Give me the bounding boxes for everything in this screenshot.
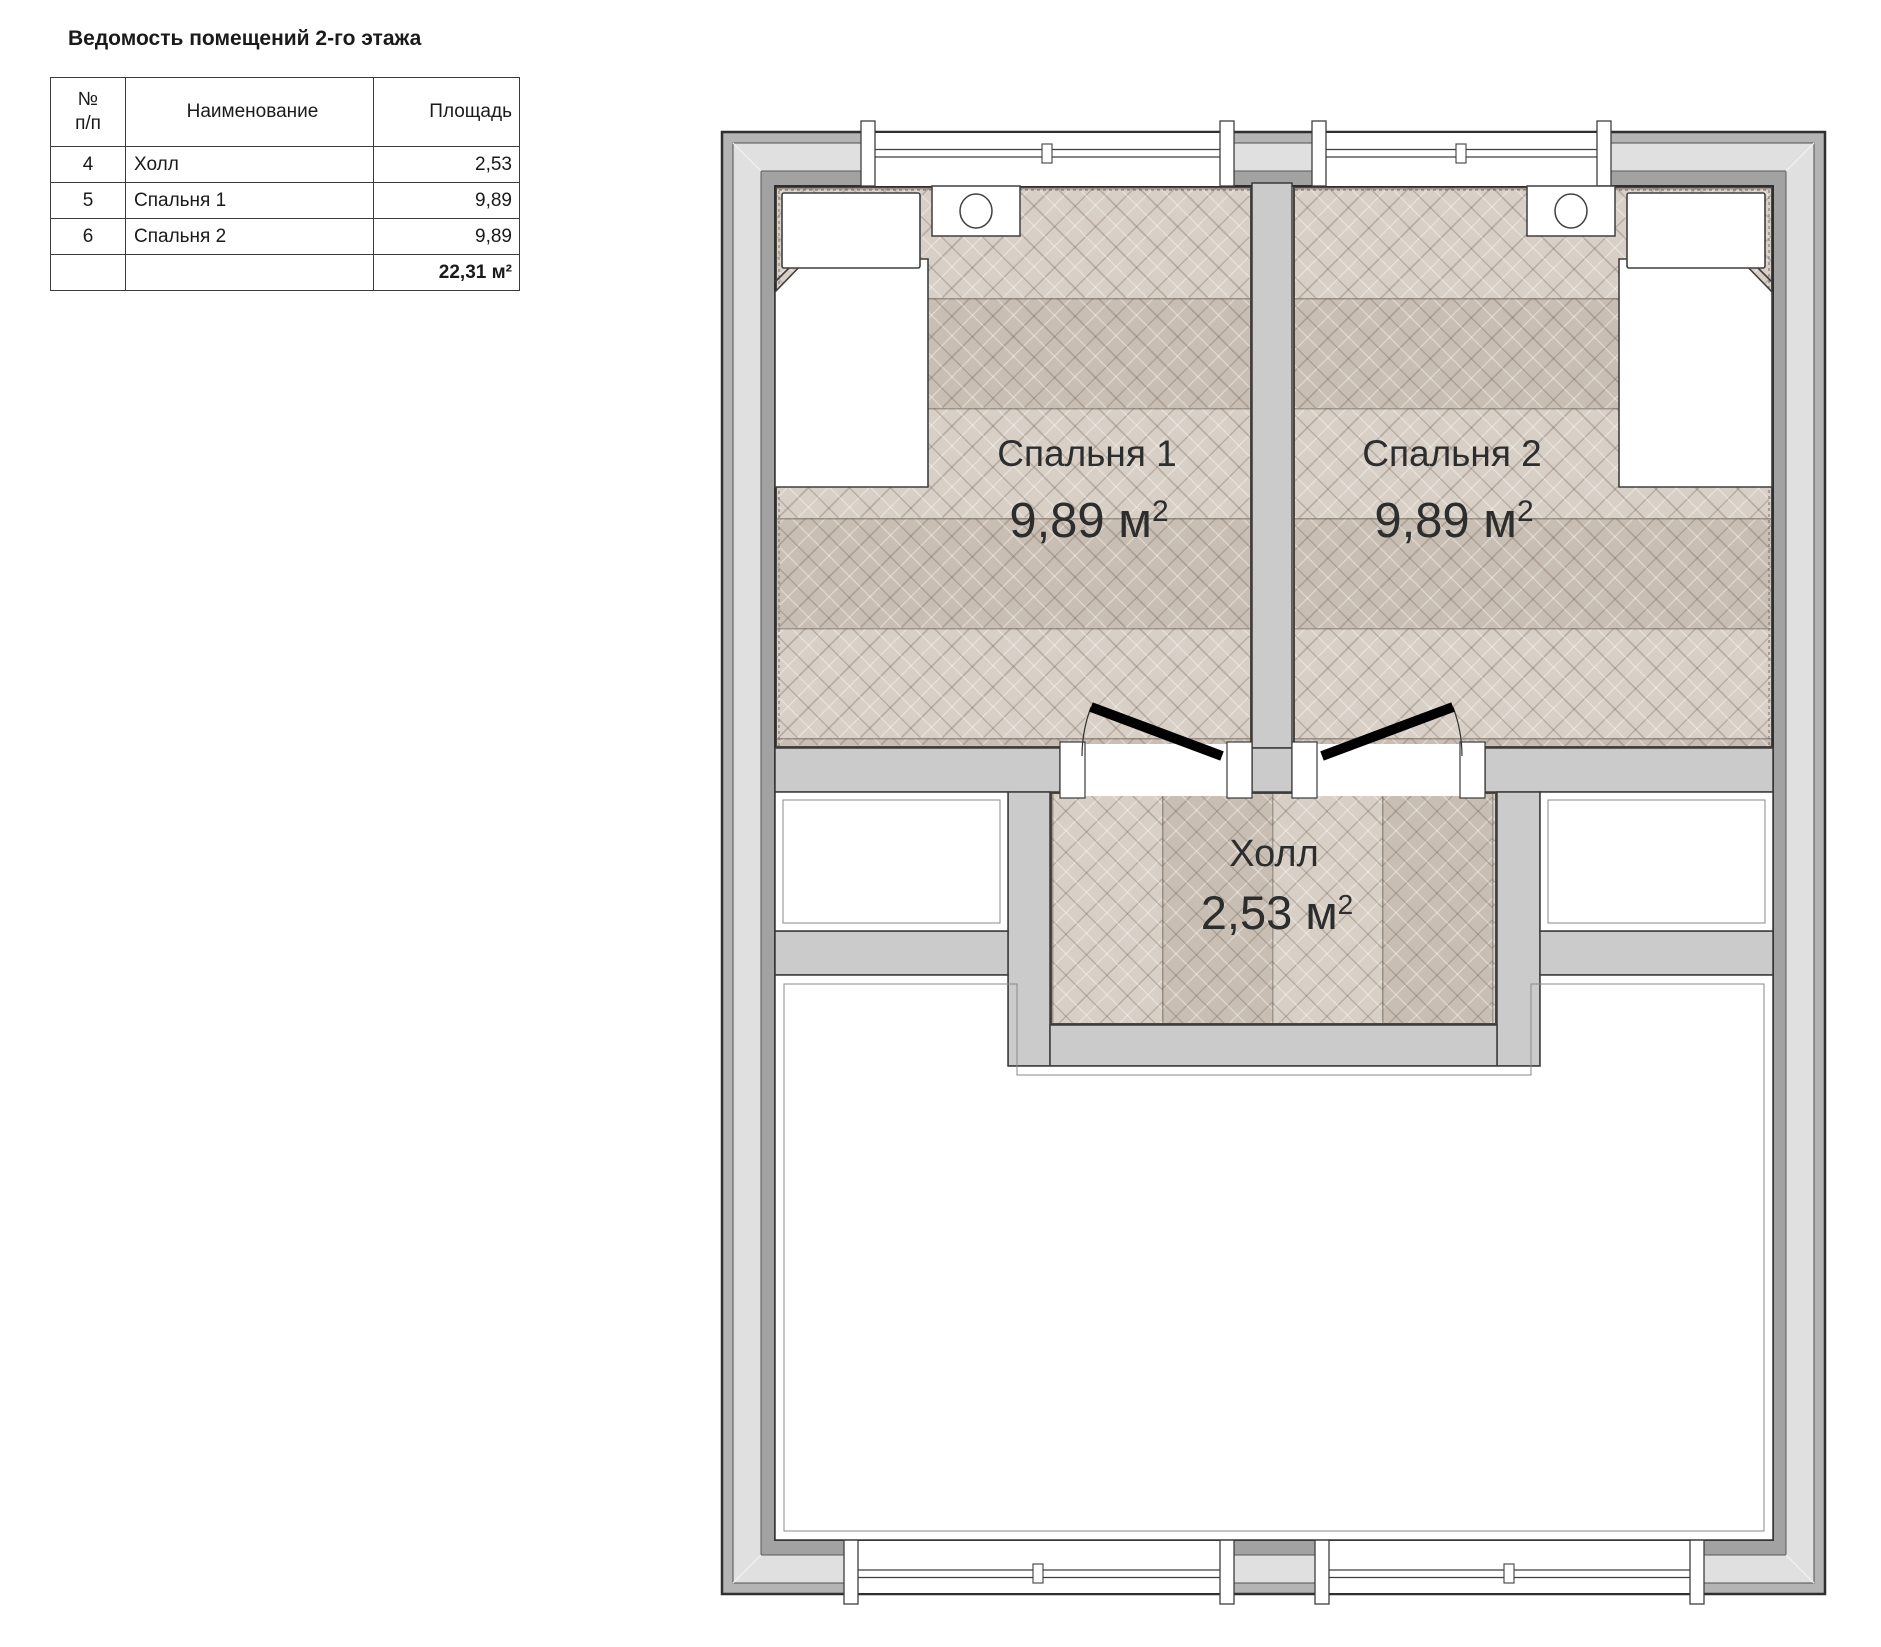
col-header-name: Наименование [126,78,374,147]
room-number: 5 [51,183,126,219]
bedroom-hall-wall-right [1485,748,1773,792]
bedroom2-name-label: Спальня 2 [1362,433,1542,474]
room-area: 2,53 [374,147,520,183]
bed-pillow [1627,193,1765,268]
window-jamb [1315,1538,1329,1604]
window-jamb [861,121,875,186]
nightstand-bedroom1 [932,186,1020,236]
floor-plan: Спальня 1 9,89 м2 Спальня 2 9,89 м2 Холл… [690,95,1860,1630]
hall-wall-left [1008,792,1050,1066]
window-mullion [1456,144,1466,163]
empty-cell [51,255,126,291]
door-jamb [1460,742,1485,798]
door-bedroom2 [1292,707,1485,798]
col-header-area: Площадь [374,78,520,147]
total-area: 22,31 м² [374,255,520,291]
legend-title: Ведомость помещений 2-го этажа [68,27,421,51]
bed-bedroom2 [1619,193,1772,487]
nightstand-bedroom2 [1527,186,1615,236]
window-jamb [1312,121,1326,186]
window-jamb [844,1538,858,1604]
closet-outline [1540,792,1773,931]
room-name: Спальня 1 [126,183,374,219]
bed-bedroom1 [775,193,928,487]
window-jamb [1220,121,1234,186]
empty-cell [126,255,374,291]
col-header-number: № п/п [51,78,126,147]
bed-pillow [782,193,920,268]
table-header-row: № п/п Наименование Площадь [51,78,520,147]
hall-wall-right [1497,792,1540,1066]
closet-outline [775,792,1008,931]
door-bedroom1 [1060,707,1252,798]
bedroom2-area-label: 9,89 м2 [1374,494,1533,548]
bedroom-hall-wall-left [775,748,1060,792]
door-jamb [1060,742,1085,798]
closet-right [1540,792,1773,931]
closet-bottom-wall-right [1540,931,1773,975]
hall-area-label: 2,53 м2 [1201,886,1353,939]
lamp-icon [1555,194,1587,228]
window-jamb [1690,1538,1704,1604]
bed-blanket [775,259,928,487]
window-mullion [1504,1564,1514,1583]
lamp-icon [960,194,992,228]
door-jamb [1227,742,1252,798]
table-row: 4 Холл 2,53 [51,147,520,183]
room-number: 6 [51,219,126,255]
window-mullion [1033,1564,1043,1583]
closet-bottom-wall-left [775,931,1008,975]
door-jamb [1292,742,1317,798]
window-mullion [1042,144,1052,163]
page: { "legend": { "title": "Ведомость помеще… [0,0,1881,1647]
table-row: 6 Спальня 2 9,89 [51,219,520,255]
hall-name-label: Холл [1229,833,1319,875]
window-jamb [1597,121,1611,186]
hall-bottom-wall [1050,1025,1497,1066]
closet-left [775,792,1008,931]
bedroom1-area-label: 9,89 м2 [1009,494,1168,548]
room-number: 4 [51,147,126,183]
bedroom1-name-label: Спальня 1 [997,433,1177,474]
room-name: Спальня 2 [126,219,374,255]
table-row: 5 Спальня 1 9,89 [51,183,520,219]
bedroom-divider-wall [1252,183,1292,748]
rooms-table: № п/п Наименование Площадь 4 Холл 2,53 5… [50,77,520,291]
room-area: 9,89 [374,183,520,219]
room-area: 9,89 [374,219,520,255]
window-jamb [1220,1538,1234,1604]
table-total-row: 22,31 м² [51,255,520,291]
room-name: Холл [126,147,374,183]
bed-blanket [1619,259,1772,487]
door-pier-core [1252,748,1292,792]
